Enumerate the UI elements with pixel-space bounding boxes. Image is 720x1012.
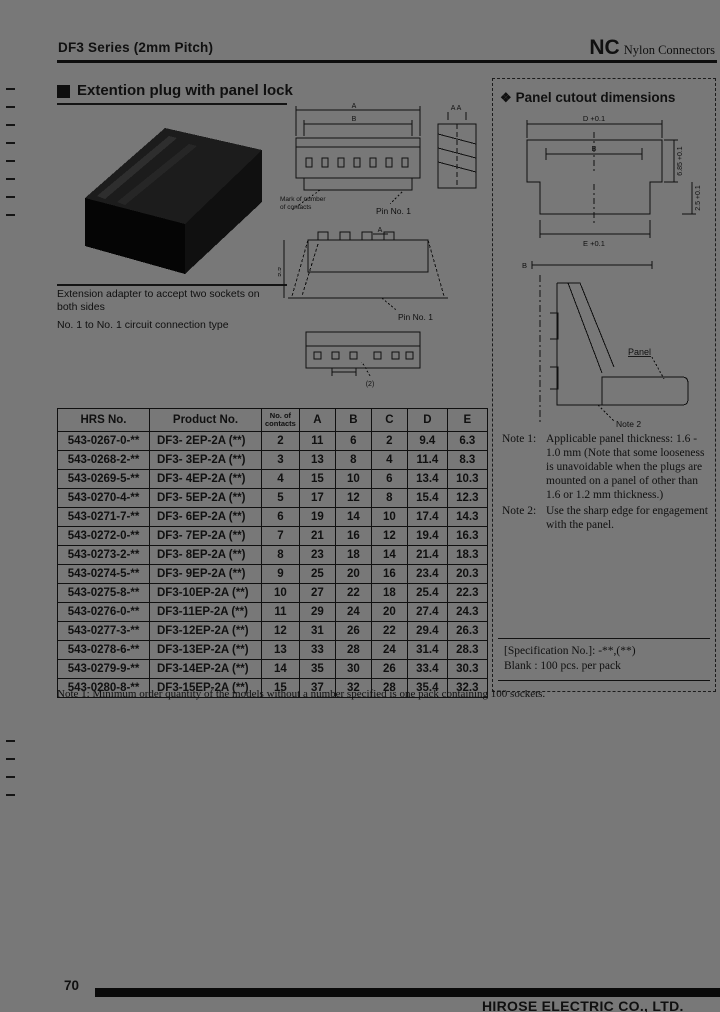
table-cell: 4 xyxy=(371,451,407,470)
table-cell: 8 xyxy=(335,451,371,470)
table-cell: 31 xyxy=(299,622,335,641)
svg-text:Panel: Panel xyxy=(628,347,651,357)
photo-frame-bottom xyxy=(57,284,287,286)
table-row: 543-0272-0-**DF3- 7EP-2A (**)721161219.4… xyxy=(58,527,488,546)
brand-type: Nylon Connectors xyxy=(624,43,715,57)
svg-text:A A: A A xyxy=(451,105,462,112)
table-cell: 22.3 xyxy=(447,584,487,603)
table-cell: 7 xyxy=(262,527,300,546)
table-cell: 13 xyxy=(299,451,335,470)
col-a: A xyxy=(299,409,335,432)
table-row: 543-0267-0-**DF3- 2EP-2A (**)211629.46.3 xyxy=(58,432,488,451)
svg-text:A: A xyxy=(352,103,357,110)
col-e: E xyxy=(447,409,487,432)
company-name: HIROSE ELECTRIC CO., LTD. xyxy=(482,998,684,1012)
table-row: 543-0274-5-**DF3- 9EP-2A (**)925201623.4… xyxy=(58,565,488,584)
table-cell: 20.3 xyxy=(447,565,487,584)
svg-text:(2): (2) xyxy=(366,381,375,388)
table-cell: DF3- 2EP-2A (**) xyxy=(150,432,262,451)
note-1-label: Note 1: xyxy=(502,432,546,502)
svg-text:Pin No. 1: Pin No. 1 xyxy=(376,206,411,216)
table-cell: 6 xyxy=(335,432,371,451)
table-cell: 8 xyxy=(262,546,300,565)
table-cell: 14 xyxy=(371,546,407,565)
svg-text:Note 2: Note 2 xyxy=(616,419,641,429)
table-row: 543-0279-9-**DF3-14EP-2A (**)1435302633.… xyxy=(58,660,488,679)
table-cell: 23 xyxy=(299,546,335,565)
diamond-icon: ❖ xyxy=(500,90,512,105)
table-cell: 29 xyxy=(299,603,335,622)
spec-line-1: [Specification No.]: -**,(**) xyxy=(504,644,706,659)
footer-bar xyxy=(95,988,720,997)
table-cell: 15 xyxy=(299,470,335,489)
brand-block: NCNylon Connectors xyxy=(589,36,715,60)
table-cell: 543-0276-0-** xyxy=(58,603,150,622)
table-row: 543-0278-6-**DF3-13EP-2A (**)1333282431.… xyxy=(58,641,488,660)
table-row: 543-0273-2-**DF3- 8EP-2A (**)823181421.4… xyxy=(58,546,488,565)
note-2: Note 2: Use the sharp edge for engagemen… xyxy=(502,504,708,532)
table-cell: 21.4 xyxy=(407,546,447,565)
table-cell: 24.3 xyxy=(447,603,487,622)
page-title: DF3 Series (2mm Pitch) xyxy=(58,40,213,55)
panel-section-title: ❖Panel cutout dimensions xyxy=(500,90,675,106)
table-cell: 543-0277-3-** xyxy=(58,622,150,641)
table-cell: DF3- 5EP-2A (**) xyxy=(150,489,262,508)
table-cell: 20 xyxy=(371,603,407,622)
svg-text:B: B xyxy=(352,116,357,123)
parts-table: HRS No. Product No. No. of contacts A B … xyxy=(57,408,488,698)
table-row: 543-0277-3-**DF3-12EP-2A (**)1231262229.… xyxy=(58,622,488,641)
table-note: Note 1: Minimum order quantity of the mo… xyxy=(57,688,617,700)
table-cell: 543-0278-6-** xyxy=(58,641,150,660)
table-cell: 12 xyxy=(262,622,300,641)
table-cell: 24 xyxy=(335,603,371,622)
table-cell: 25 xyxy=(299,565,335,584)
table-cell: 2 xyxy=(371,432,407,451)
table-cell: 14 xyxy=(262,660,300,679)
table-cell: 11 xyxy=(262,603,300,622)
header-rule xyxy=(57,60,717,63)
svg-text:2.5 +0.1: 2.5 +0.1 xyxy=(695,185,702,211)
panel-engagement-drawing: B Panel Note 2 xyxy=(502,255,707,430)
svg-text:9.9: 9.9 xyxy=(278,267,283,277)
table-cell: 17.4 xyxy=(407,508,447,527)
table-cell: 8 xyxy=(371,489,407,508)
table-cell: 21 xyxy=(299,527,335,546)
section-square-icon xyxy=(57,85,70,98)
caption-line: No. 1 to No. 1 circuit connection type xyxy=(57,319,292,332)
plug-section-title: Extention plug with panel lock xyxy=(77,82,293,99)
note-1: Note 1: Applicable panel thickness: 1.6 … xyxy=(502,432,708,502)
note-1-text: Applicable panel thickness: 1.6 - 1.0 mm… xyxy=(546,432,708,502)
connector-photo xyxy=(57,106,287,282)
table-cell: 11 xyxy=(299,432,335,451)
table-cell: 27 xyxy=(299,584,335,603)
table-cell: 23.4 xyxy=(407,565,447,584)
table-cell: 14 xyxy=(335,508,371,527)
col-product-no: Product No. xyxy=(150,409,262,432)
table-cell: 543-0273-2-** xyxy=(58,546,150,565)
col-hrs-no: HRS No. xyxy=(58,409,150,432)
table-cell: DF3-11EP-2A (**) xyxy=(150,603,262,622)
table-cell: 543-0268-2-** xyxy=(58,451,150,470)
svg-text:D +0.1: D +0.1 xyxy=(583,114,605,123)
table-cell: 16.3 xyxy=(447,527,487,546)
note-2-label: Note 2: xyxy=(502,504,546,532)
table-cell: 30 xyxy=(335,660,371,679)
table-cell: DF3- 9EP-2A (**) xyxy=(150,565,262,584)
svg-text:Mark of number: Mark of number xyxy=(280,196,326,203)
table-cell: DF3- 8EP-2A (**) xyxy=(150,546,262,565)
table-cell: 33.4 xyxy=(407,660,447,679)
table-cell: DF3-12EP-2A (**) xyxy=(150,622,262,641)
table-cell: DF3-13EP-2A (**) xyxy=(150,641,262,660)
table-cell: 6.3 xyxy=(447,432,487,451)
table-cell: 10 xyxy=(371,508,407,527)
table-row: 543-0275-8-**DF3-10EP-2A (**)1027221825.… xyxy=(58,584,488,603)
table-cell: 10 xyxy=(335,470,371,489)
table-cell: 8.3 xyxy=(447,451,487,470)
page-number: 70 xyxy=(64,978,79,993)
table-cell: 10 xyxy=(262,584,300,603)
svg-text:A: A xyxy=(378,227,383,234)
col-d: D xyxy=(407,409,447,432)
table-cell: 9.4 xyxy=(407,432,447,451)
table-cell: 12 xyxy=(371,527,407,546)
table-cell: 26 xyxy=(335,622,371,641)
table-cell: 18 xyxy=(335,546,371,565)
table-cell: 13.4 xyxy=(407,470,447,489)
table-cell: 31.4 xyxy=(407,641,447,660)
table-cell: DF3-14EP-2A (**) xyxy=(150,660,262,679)
table-cell: 12 xyxy=(335,489,371,508)
table-cell: DF3- 6EP-2A (**) xyxy=(150,508,262,527)
table-cell: 543-0272-0-** xyxy=(58,527,150,546)
caption-line: both sides xyxy=(57,301,292,314)
table-cell: 543-0274-5-** xyxy=(58,565,150,584)
table-cell: 543-0269-5-** xyxy=(58,470,150,489)
table-cell: 35 xyxy=(299,660,335,679)
table-cell: 20 xyxy=(335,565,371,584)
table-cell: DF3- 7EP-2A (**) xyxy=(150,527,262,546)
table-cell: 2 xyxy=(262,432,300,451)
table-cell: 22 xyxy=(335,584,371,603)
table-cell: 5 xyxy=(262,489,300,508)
table-cell: 28.3 xyxy=(447,641,487,660)
svg-text:B: B xyxy=(522,261,527,270)
table-row: 543-0276-0-**DF3-11EP-2A (**)1129242027.… xyxy=(58,603,488,622)
table-cell: 26 xyxy=(371,660,407,679)
table-cell: 33 xyxy=(299,641,335,660)
table-cell: 30.3 xyxy=(447,660,487,679)
svg-text:Pin No. 1: Pin No. 1 xyxy=(398,312,433,322)
specification-box: [Specification No.]: -**,(**) Blank : 10… xyxy=(498,638,710,681)
table-cell: 22 xyxy=(371,622,407,641)
table-row: 543-0271-7-**DF3- 6EP-2A (**)619141017.4… xyxy=(58,508,488,527)
note-2-text: Use the sharp edge for engagement with t… xyxy=(546,504,708,532)
table-row: 543-0269-5-**DF3- 4EP-2A (**)41510613.41… xyxy=(58,470,488,489)
photo-captions: Extension adapter to accept two sockets … xyxy=(57,288,292,332)
table-cell: 17 xyxy=(299,489,335,508)
table-cell: DF3- 4EP-2A (**) xyxy=(150,470,262,489)
table-cell: 26.3 xyxy=(447,622,487,641)
table-header-row: HRS No. Product No. No. of contacts A B … xyxy=(58,409,488,432)
caption-line: Extension adapter to accept two sockets … xyxy=(57,288,292,301)
col-b: B xyxy=(335,409,371,432)
col-contacts: No. of contacts xyxy=(262,409,300,432)
table-cell: 16 xyxy=(335,527,371,546)
table-cell: 15.4 xyxy=(407,489,447,508)
dimension-drawings: A B A A Mark of number of contacts Pin N… xyxy=(278,100,490,400)
table-cell: 543-0275-8-** xyxy=(58,584,150,603)
table-cell: 16 xyxy=(371,565,407,584)
table-cell: 19.4 xyxy=(407,527,447,546)
table-cell: 29.4 xyxy=(407,622,447,641)
table-row: 543-0270-4-**DF3- 5EP-2A (**)51712815.41… xyxy=(58,489,488,508)
table-cell: 4 xyxy=(262,470,300,489)
panel-cutout-drawing: D +0.1 B 6.85 +0.1 2.5 +0.1 E +0.1 xyxy=(502,112,707,250)
table-cell: DF3- 3EP-2A (**) xyxy=(150,451,262,470)
table-cell: 27.4 xyxy=(407,603,447,622)
table-cell: 18.3 xyxy=(447,546,487,565)
svg-text:of contacts: of contacts xyxy=(280,204,312,211)
table-cell: 14.3 xyxy=(447,508,487,527)
table-cell: 19 xyxy=(299,508,335,527)
table-cell: 13 xyxy=(262,641,300,660)
table-row: 543-0268-2-**DF3- 3EP-2A (**)3138411.48.… xyxy=(58,451,488,470)
table-cell: 18 xyxy=(371,584,407,603)
table-cell: 543-0270-4-** xyxy=(58,489,150,508)
table-cell: 3 xyxy=(262,451,300,470)
table-cell: 12.3 xyxy=(447,489,487,508)
table-body: 543-0267-0-**DF3- 2EP-2A (**)211629.46.3… xyxy=(58,432,488,698)
brand-code: NC xyxy=(589,36,619,59)
table-cell: 10.3 xyxy=(447,470,487,489)
table-cell: 25.4 xyxy=(407,584,447,603)
table-cell: DF3-10EP-2A (**) xyxy=(150,584,262,603)
table-cell: 24 xyxy=(371,641,407,660)
col-c: C xyxy=(371,409,407,432)
table-cell: 11.4 xyxy=(407,451,447,470)
table-cell: 6 xyxy=(262,508,300,527)
svg-text:B: B xyxy=(591,144,596,153)
catalog-page: DF3 Series (2mm Pitch) NCNylon Connector… xyxy=(0,0,720,1012)
table-cell: 543-0279-9-** xyxy=(58,660,150,679)
spec-line-2: Blank : 100 pcs. per pack xyxy=(504,659,706,674)
svg-text:6.85 +0.1: 6.85 +0.1 xyxy=(677,146,684,175)
table-cell: 543-0271-7-** xyxy=(58,508,150,527)
table-cell: 6 xyxy=(371,470,407,489)
photo-frame-top xyxy=(57,103,287,105)
table-cell: 28 xyxy=(335,641,371,660)
table-cell: 543-0267-0-** xyxy=(58,432,150,451)
svg-text:E +0.1: E +0.1 xyxy=(583,239,605,248)
panel-notes: Note 1: Applicable panel thickness: 1.6 … xyxy=(502,432,708,534)
table-cell: 9 xyxy=(262,565,300,584)
